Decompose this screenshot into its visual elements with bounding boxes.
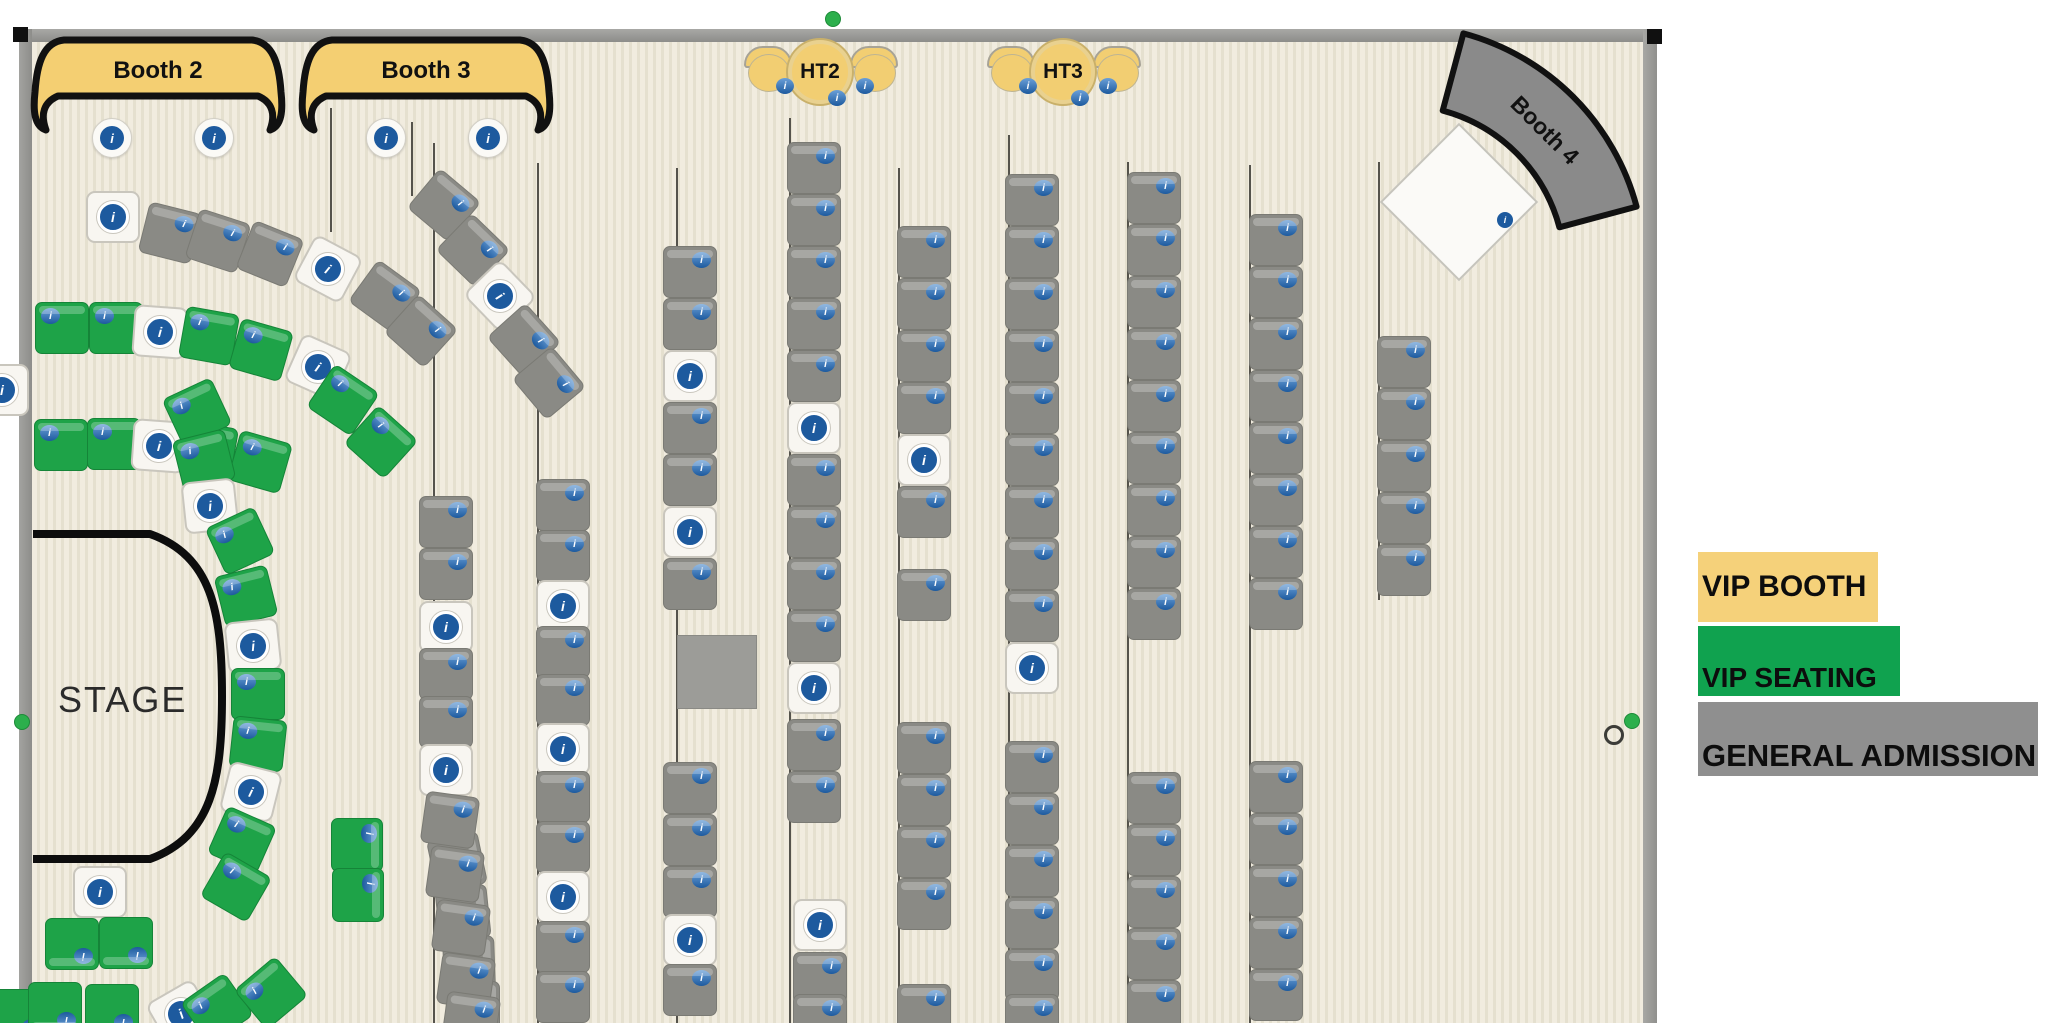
guest-badge-icon: i [565, 827, 584, 843]
guest-badge-icon: i [1034, 596, 1053, 612]
guest-badge-icon: i [692, 970, 711, 986]
guest-badge-icon: i [189, 313, 210, 332]
guest-badge-icon: i [816, 252, 835, 268]
seat-unassigned[interactable]: i [663, 914, 717, 966]
guest-badge-icon: i [1156, 594, 1175, 610]
midpoint-handle[interactable] [1624, 713, 1640, 729]
guest-badge-icon: i [816, 725, 835, 741]
seat-general[interactable]: i [1005, 994, 1059, 1023]
guest-badge-icon: i [856, 78, 874, 94]
guest-badge-icon: i [188, 994, 213, 1018]
info-icon: i [142, 429, 176, 463]
seat-general[interactable]: i [793, 994, 847, 1023]
seat-general[interactable]: i [1127, 224, 1181, 276]
guest-badge-icon: i [1034, 388, 1053, 404]
guest-badge-icon: i [1099, 78, 1117, 94]
guest-badge-icon: i [425, 317, 450, 342]
guest-badge-icon: i [1278, 871, 1297, 887]
guest-badge-icon: i [1156, 438, 1175, 454]
seat-general[interactable]: i [663, 298, 717, 350]
guest-badge-icon: i [1034, 544, 1053, 560]
stage-label: STAGE [58, 679, 187, 720]
seat-general[interactable]: i [897, 826, 951, 878]
guest-badge-icon: i [1278, 480, 1297, 496]
guest-badge-icon: i [474, 1000, 495, 1018]
seat-general[interactable]: i [897, 774, 951, 826]
seat-general[interactable]: i [1127, 276, 1181, 328]
seat-vip[interactable]: i [45, 918, 99, 970]
guest-badge-icon: i [273, 236, 297, 258]
seat-general[interactable]: i [1249, 578, 1303, 630]
guest-badge-icon: i [1034, 492, 1053, 508]
info-icon: i [0, 374, 18, 406]
seat-general[interactable]: i [1005, 382, 1059, 434]
guest-badge-icon: i [565, 485, 584, 501]
guest-badge-icon: i [692, 564, 711, 580]
guest-badge-icon: i [458, 854, 479, 872]
seat-general[interactable]: i [897, 569, 951, 621]
guest-badge-icon: i [128, 947, 147, 963]
info-icon: i [547, 733, 579, 765]
guest-badge-icon: i [1156, 542, 1175, 558]
info-icon: i [674, 924, 706, 956]
guest-badge-icon: i [95, 308, 114, 324]
booth-3-label: Booth 3 [381, 57, 470, 84]
guest-badge-icon: i [242, 979, 267, 1003]
guest-badge-icon: i [1278, 584, 1297, 600]
seat-general[interactable]: i [663, 454, 717, 506]
guest-badge-icon: i [926, 884, 945, 900]
seat-unassigned[interactable]: i [0, 364, 29, 416]
guest-badge-icon: i [828, 90, 846, 106]
seat-general[interactable]: i [787, 454, 841, 506]
seat-general[interactable]: i [1127, 328, 1181, 380]
seat-general[interactable]: i [1005, 330, 1059, 382]
seat-general[interactable]: i [663, 964, 717, 1016]
guest-badge-icon: i [1278, 428, 1297, 444]
seat-general[interactable]: i [787, 719, 841, 771]
guest-badge-icon: i [40, 425, 59, 441]
info-icon: i [430, 754, 462, 786]
seat-general[interactable]: i [1127, 928, 1181, 980]
seat-general[interactable]: i [787, 142, 841, 194]
seat-general[interactable]: i [663, 402, 717, 454]
seat-unassigned[interactable]: i [663, 350, 717, 402]
guest-badge-icon: i [1034, 1000, 1053, 1016]
guest-badge-icon: i [776, 78, 794, 94]
seat-vip[interactable]: i [85, 984, 139, 1023]
guest-badge-icon: i [368, 413, 393, 438]
guest-badge-icon: i [1034, 284, 1053, 300]
guest-badge-icon: i [448, 191, 473, 215]
seat-general[interactable]: i [787, 194, 841, 246]
guest-badge-icon: i [1278, 376, 1297, 392]
guest-badge-icon: i [74, 948, 93, 964]
guest-badge-icon: i [565, 632, 584, 648]
guest-badge-icon: i [41, 308, 60, 324]
guest-badge-icon: i [816, 777, 835, 793]
seat-unassigned[interactable]: i [1005, 642, 1059, 694]
seat-general[interactable]: i [1127, 980, 1181, 1023]
seat-unassigned[interactable]: i [419, 744, 473, 796]
info-icon: i [804, 909, 836, 941]
info-icon: i [547, 590, 579, 622]
guest-badge-icon: i [1278, 532, 1297, 548]
guest-badge-icon: i [1406, 498, 1425, 514]
guest-badge-icon: i [328, 372, 353, 396]
seat-general[interactable]: i [1127, 588, 1181, 640]
seat-vip[interactable]: i [99, 917, 153, 969]
seat-general[interactable]: i [1005, 590, 1059, 642]
info-icon: i [97, 201, 129, 233]
seat-general[interactable]: i [787, 350, 841, 402]
guest-badge-icon: i [221, 223, 244, 244]
info-icon: i [192, 488, 227, 523]
seat-general[interactable]: i [419, 648, 473, 700]
seat-general[interactable]: i [1249, 917, 1303, 969]
seat-general[interactable]: i [1005, 897, 1059, 949]
guest-badge-icon: i [1156, 830, 1175, 846]
seat-unassigned[interactable]: i [897, 434, 951, 486]
seat-general[interactable]: i [1127, 876, 1181, 928]
legend-general-admission-label: GENERAL ADMISSION [1702, 738, 2036, 774]
info-icon: i [798, 412, 830, 444]
guest-badge-icon: i [1156, 882, 1175, 898]
guest-badge-icon: i [448, 702, 467, 718]
guest-badge-icon: i [362, 874, 378, 893]
seat-general[interactable]: i [663, 814, 717, 866]
guest-badge-icon: i [1406, 394, 1425, 410]
guest-badge-icon: i [926, 388, 945, 404]
seat-general[interactable]: i [1377, 388, 1431, 440]
guest-badge-icon: i [1278, 923, 1297, 939]
guest-badge-icon: i [1034, 955, 1053, 971]
guest-badge-icon: i [926, 492, 945, 508]
seat-general[interactable]: i [1249, 813, 1303, 865]
info-icon: i [1016, 652, 1048, 684]
guest-badge-icon: i [1034, 180, 1053, 196]
seat-general[interactable]: i [787, 610, 841, 662]
guest-badge-icon: i [1034, 336, 1053, 352]
guest-badge-icon: i [816, 460, 835, 476]
seat-general[interactable]: i [787, 298, 841, 350]
guest-badge-icon: i [565, 536, 584, 552]
seat-vip[interactable]: i [34, 419, 88, 471]
guest-badge-icon: i [692, 460, 711, 476]
guest-badge-icon: i [1156, 178, 1175, 194]
seat-general[interactable]: i [1127, 172, 1181, 224]
guest-badge-icon: i [1278, 767, 1297, 783]
midpoint-handle[interactable] [825, 11, 841, 27]
guest-badge-icon: i [692, 768, 711, 784]
seat-general[interactable]: i [1005, 174, 1059, 226]
seat-general[interactable]: i [419, 696, 473, 748]
seat-vip[interactable]: i [28, 982, 82, 1023]
seat-general[interactable]: i [1127, 432, 1181, 484]
guest-badge-icon: i [692, 820, 711, 836]
guest-badge-icon: i [1034, 747, 1053, 763]
guest-badge-icon: i [1034, 903, 1053, 919]
seat-general[interactable]: i [536, 626, 590, 678]
guest-badge-icon: i [692, 304, 711, 320]
guest-badge-icon: i [464, 908, 485, 926]
guest-badge-icon: i [565, 977, 584, 993]
info-icon: i [908, 444, 940, 476]
selection-handle[interactable] [13, 27, 28, 42]
info-icon: i [798, 672, 830, 704]
seat-unassigned[interactable]: i [419, 601, 473, 653]
seat-general[interactable]: i [897, 984, 951, 1023]
guest-badge-icon: i [1278, 975, 1297, 991]
seat-unassigned[interactable]: i [663, 506, 717, 558]
seat-general[interactable]: i [1005, 486, 1059, 538]
seat-general[interactable]: i [1249, 422, 1303, 474]
guest-badge-icon: i [692, 872, 711, 888]
guest-badge-icon: i [469, 961, 490, 979]
guest-badge-icon: i [1278, 220, 1297, 236]
guest-badge-icon: i [926, 336, 945, 352]
guest-badge-icon: i [448, 654, 467, 670]
seat-unassigned[interactable]: i [536, 580, 590, 632]
seat-general[interactable]: i [787, 558, 841, 610]
seat-general[interactable]: i [1249, 761, 1303, 813]
wall-right [1643, 29, 1657, 1023]
seat-unassigned[interactable]: i [787, 662, 841, 714]
guest-badge-icon: i [114, 1014, 133, 1023]
seat-general[interactable]: i [420, 790, 481, 849]
seat-general[interactable]: i [787, 771, 841, 823]
guest-badge-icon: i [1071, 90, 1089, 106]
seat-general[interactable]: i [1127, 772, 1181, 824]
booth-3[interactable]: Booth 3 [298, 34, 556, 138]
seat-general[interactable]: i [1249, 969, 1303, 1021]
seat-general[interactable]: i [897, 722, 951, 774]
guest-badge-icon: i [926, 990, 945, 1006]
guest-badge-icon: i [1406, 342, 1425, 358]
seat-general[interactable]: i [536, 921, 590, 973]
seat-general[interactable]: i [1377, 440, 1431, 492]
seat-general[interactable]: i [1127, 380, 1181, 432]
seat-general[interactable]: i [536, 674, 590, 726]
guest-badge-icon: i [448, 502, 467, 518]
seat-general[interactable]: i [1005, 793, 1059, 845]
seat-general[interactable]: i [536, 971, 590, 1023]
seat-general[interactable]: i [787, 506, 841, 558]
guest-badge-icon: i [816, 616, 835, 632]
guest-badge-icon: i [816, 200, 835, 216]
guest-badge-icon: i [1406, 446, 1425, 462]
guest-badge-icon: i [553, 372, 577, 397]
seat-vip[interactable]: i [332, 868, 384, 922]
legend-vip-booth: VIP BOOTH [1698, 552, 1878, 622]
guest-badge-icon: i [816, 564, 835, 580]
guest-badge-icon: i [453, 800, 474, 818]
guest-badge-icon: i [692, 252, 711, 268]
booth-3-shape [302, 40, 550, 130]
seat-general[interactable]: i [1249, 370, 1303, 422]
guest-badge-icon: i [565, 927, 584, 943]
info-icon: i [430, 611, 462, 643]
guest-badge-icon: i [926, 284, 945, 300]
seat-unassigned[interactable]: i [787, 402, 841, 454]
midpoint-handle[interactable] [14, 714, 30, 730]
guest-badge-icon: i [565, 680, 584, 696]
floor-plan-canvas: iiiiiiiiiiiiiiiiiiiiiiiiiiiiiiiiiiiiiiii… [0, 0, 2048, 1023]
seat-unassigned[interactable]: i [536, 723, 590, 775]
guest-badge-icon: i [926, 728, 945, 744]
seat-general[interactable]: i [897, 382, 951, 434]
rotation-handle[interactable] [1604, 725, 1624, 745]
booth-2-label: Booth 2 [113, 57, 202, 84]
guest-badge-icon: i [1156, 386, 1175, 402]
seat-general[interactable]: i [1005, 278, 1059, 330]
guest-badge-icon: i [1278, 324, 1297, 340]
seat-general[interactable]: i [663, 558, 717, 610]
guest-badge-icon: i [448, 554, 467, 570]
seat-general[interactable]: i [1127, 824, 1181, 876]
seat-general[interactable]: i [1005, 434, 1059, 486]
seat-general[interactable]: i [1127, 536, 1181, 588]
seat-general[interactable]: i [431, 898, 492, 957]
seat-general[interactable]: i [897, 278, 951, 330]
guest-badge-icon: i [1034, 851, 1053, 867]
seat-general[interactable]: i [897, 226, 951, 278]
guest-badge-icon: i [926, 232, 945, 248]
guest-badge-icon: i [241, 437, 264, 458]
guest-badge-icon: i [242, 325, 265, 346]
info-icon: i [547, 881, 579, 913]
seat-general[interactable]: i [1127, 484, 1181, 536]
seat-general[interactable]: i [897, 878, 951, 930]
guest-badge-icon: i [1156, 490, 1175, 506]
guest-badge-icon: i [926, 780, 945, 796]
guest-badge-icon: i [816, 356, 835, 372]
info-icon: i [674, 516, 706, 548]
seat-general[interactable]: i [897, 330, 951, 382]
guest-badge-icon: i [1034, 440, 1053, 456]
legend-general-admission: GENERAL ADMISSION [1698, 702, 2038, 776]
info-icon: i [674, 360, 706, 392]
guest-badge-icon: i [179, 441, 201, 461]
guest-badge-icon: i [1156, 934, 1175, 950]
seat-general[interactable]: i [1249, 474, 1303, 526]
info-icon: i [143, 315, 177, 349]
guest-badge-icon: i [477, 237, 502, 262]
seat-general[interactable]: i [1249, 318, 1303, 370]
seat-unassigned[interactable]: i [536, 871, 590, 923]
guest-badge-icon: i [816, 148, 835, 164]
guest-badge-icon: i [1019, 78, 1037, 94]
guest-badge-icon: i [1156, 230, 1175, 246]
guest-badge-icon: i [565, 777, 584, 793]
seat-unassigned[interactable]: i [86, 191, 140, 243]
guest-badge-icon: i [816, 304, 835, 320]
guest-badge-icon: i [1034, 799, 1053, 815]
guest-badge-icon: i [822, 1000, 841, 1016]
table-info-icon[interactable]: i [1497, 212, 1513, 228]
seat-general[interactable]: i [1377, 336, 1431, 388]
guest-badge-icon: i [1156, 282, 1175, 298]
guest-badge-icon: i [1156, 334, 1175, 350]
seat-vip[interactable]: i [35, 302, 89, 354]
info-icon: i [306, 247, 349, 290]
seat-general[interactable]: i [419, 496, 473, 548]
seat-general[interactable]: i [1005, 845, 1059, 897]
guest-badge-icon: i [361, 824, 377, 843]
guest-badge-icon: i [1156, 986, 1175, 1002]
guest-badge-icon: i [1406, 550, 1425, 566]
stage[interactable]: STAGE [20, 520, 300, 900]
legend-vip-booth-label: VIP BOOTH [1702, 570, 1866, 604]
guest-badge-icon: i [170, 395, 194, 418]
legend-vip-seating-label: VIP SEATING [1702, 662, 1877, 694]
guest-badge-icon: i [1156, 778, 1175, 794]
seat-general[interactable]: i [536, 821, 590, 873]
seat-general[interactable]: i [663, 246, 717, 298]
guest-badge-icon: i [926, 575, 945, 591]
seat-general[interactable]: i [1249, 865, 1303, 917]
guest-badge-icon: i [1034, 232, 1053, 248]
guest-badge-icon: i [57, 1012, 76, 1023]
seat-general[interactable]: i [419, 548, 473, 600]
guest-badge-icon: i [93, 424, 112, 440]
guest-badge-icon: i [1278, 272, 1297, 288]
seat-general[interactable]: i [536, 771, 590, 823]
seat-general[interactable]: i [1377, 492, 1431, 544]
seat-general[interactable]: i [663, 762, 717, 814]
seat-general[interactable]: i [1249, 214, 1303, 266]
seat-general[interactable]: i [1249, 266, 1303, 318]
seat-general[interactable]: i [663, 866, 717, 918]
legend-vip-seating: VIP SEATING [1698, 626, 1900, 696]
guest-badge-icon: i [1278, 819, 1297, 835]
seat-general[interactable]: i [536, 530, 590, 582]
seat-general[interactable]: i [1005, 226, 1059, 278]
seat-general[interactable]: i [1249, 526, 1303, 578]
guest-badge-icon: i [816, 512, 835, 528]
seat-general[interactable]: i [1005, 538, 1059, 590]
guest-badge-icon: i [926, 832, 945, 848]
seat-general[interactable]: i [1005, 741, 1059, 793]
seat-vip[interactable]: i [331, 818, 383, 872]
seat-general[interactable]: i [536, 479, 590, 531]
seat-general[interactable]: i [1377, 544, 1431, 596]
selection-handle[interactable] [1647, 29, 1662, 44]
seat-unassigned[interactable]: i [793, 899, 847, 951]
seat-general[interactable]: i [425, 844, 486, 903]
seat-general[interactable]: i [787, 246, 841, 298]
gray-block[interactable] [677, 635, 757, 709]
booth-2-shape [34, 40, 282, 130]
guest-badge-icon: i [822, 958, 841, 974]
booth-2[interactable]: Booth 2 [30, 34, 288, 138]
guest-badge-icon: i [692, 408, 711, 424]
seat-general[interactable]: i [897, 486, 951, 538]
